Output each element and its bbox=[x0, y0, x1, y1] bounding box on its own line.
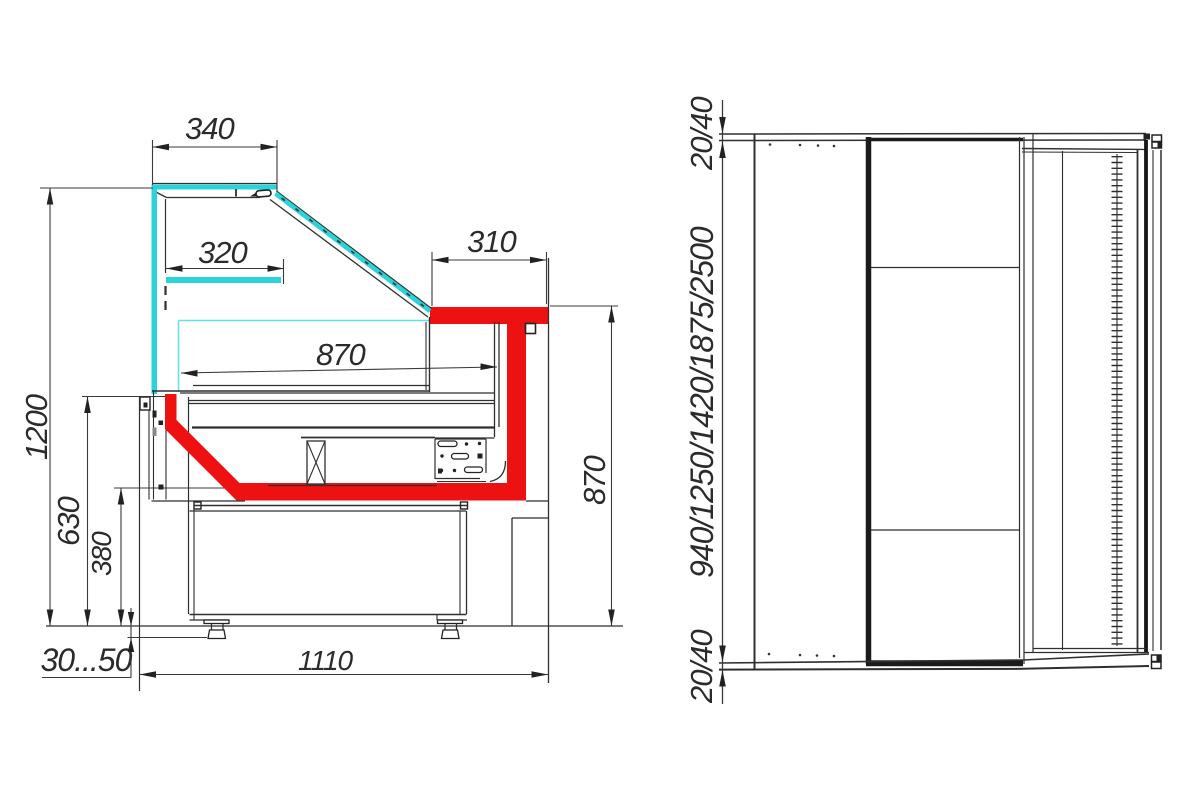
svg-text:30...50: 30...50 bbox=[41, 642, 133, 678]
svg-text:630: 630 bbox=[51, 497, 86, 546]
svg-text:1110: 1110 bbox=[298, 645, 354, 676]
svg-text:340: 340 bbox=[185, 111, 234, 146]
svg-text:870: 870 bbox=[577, 456, 612, 505]
svg-text:380: 380 bbox=[86, 531, 117, 576]
svg-text:310: 310 bbox=[467, 224, 516, 259]
svg-text:940/1250/1420/1875/2500: 940/1250/1420/1875/2500 bbox=[684, 226, 720, 578]
svg-text:870: 870 bbox=[316, 337, 365, 372]
svg-text:20/40: 20/40 bbox=[684, 97, 719, 171]
svg-text:320: 320 bbox=[198, 235, 247, 270]
svg-text:20/40: 20/40 bbox=[684, 630, 719, 704]
svg-text:1200: 1200 bbox=[19, 394, 54, 460]
